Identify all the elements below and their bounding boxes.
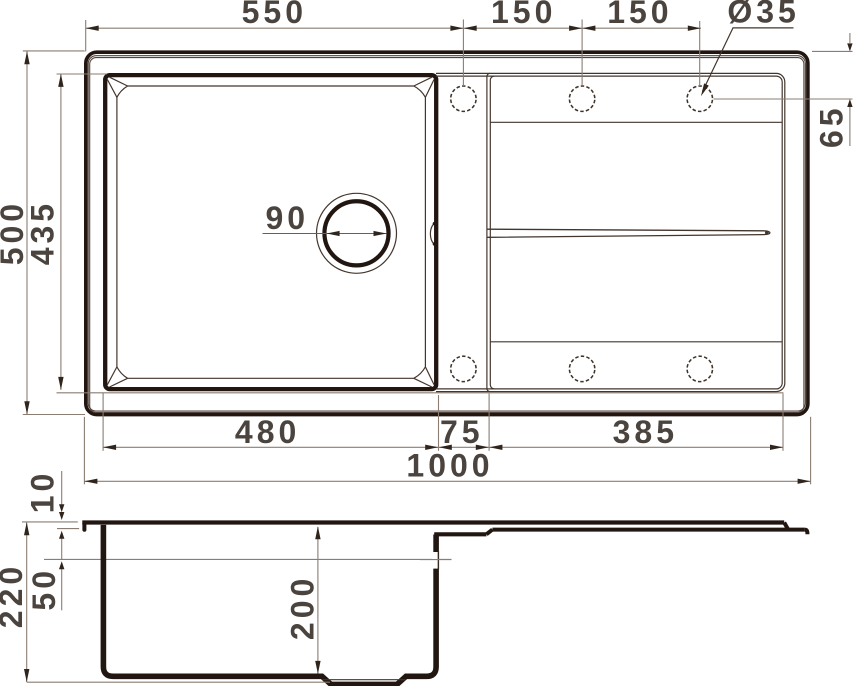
svg-text:65: 65 xyxy=(814,104,850,148)
svg-text:220: 220 xyxy=(0,563,29,628)
svg-text:90: 90 xyxy=(266,200,310,236)
svg-text:435: 435 xyxy=(25,200,61,265)
svg-text:550: 550 xyxy=(242,0,307,30)
svg-text:1000: 1000 xyxy=(406,448,493,484)
svg-text:75: 75 xyxy=(440,414,484,450)
svg-text:10: 10 xyxy=(25,470,61,514)
svg-text:Ø35: Ø35 xyxy=(727,0,799,29)
svg-text:480: 480 xyxy=(235,414,300,450)
svg-text:150: 150 xyxy=(607,0,672,30)
svg-text:200: 200 xyxy=(285,575,321,640)
svg-text:50: 50 xyxy=(26,567,62,611)
svg-text:150: 150 xyxy=(491,0,556,30)
svg-text:385: 385 xyxy=(613,414,678,450)
